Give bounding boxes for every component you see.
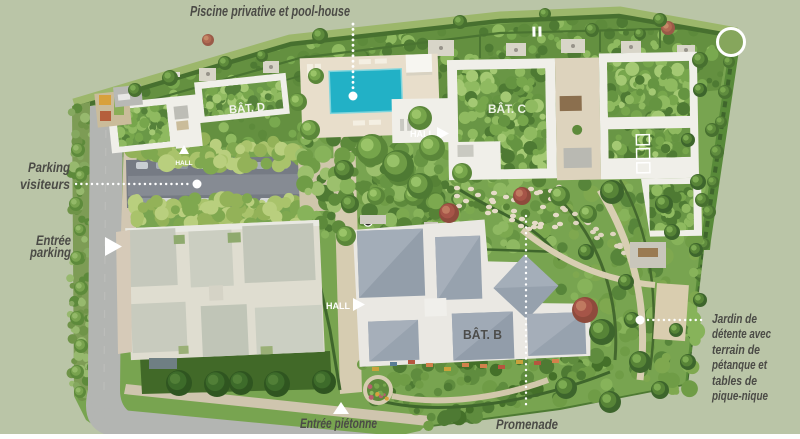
svg-text:HALL: HALL [326,301,350,311]
svg-text:parking: parking [29,245,71,260]
svg-text:Promenade: Promenade [496,417,558,432]
svg-text:Piscine privative et pool-hous: Piscine privative et pool-house [190,4,350,20]
svg-text:HALL: HALL [175,160,192,167]
svg-text:visiteurs: visiteurs [20,177,70,192]
svg-text:pétanque et: pétanque et [711,357,767,372]
svg-text:Entrée piétonne: Entrée piétonne [300,416,377,431]
svg-text:BÂT. B: BÂT. B [463,327,502,342]
svg-text:tables de: tables de [712,373,757,388]
svg-text:pique-nique: pique-nique [711,388,768,403]
svg-text:terrain de: terrain de [712,342,760,357]
svg-text:Parking: Parking [28,160,71,175]
svg-text:Jardin de: Jardin de [712,311,757,326]
svg-text:détente avec: détente avec [712,326,772,341]
svg-text:BÂT. C: BÂT. C [488,101,526,116]
